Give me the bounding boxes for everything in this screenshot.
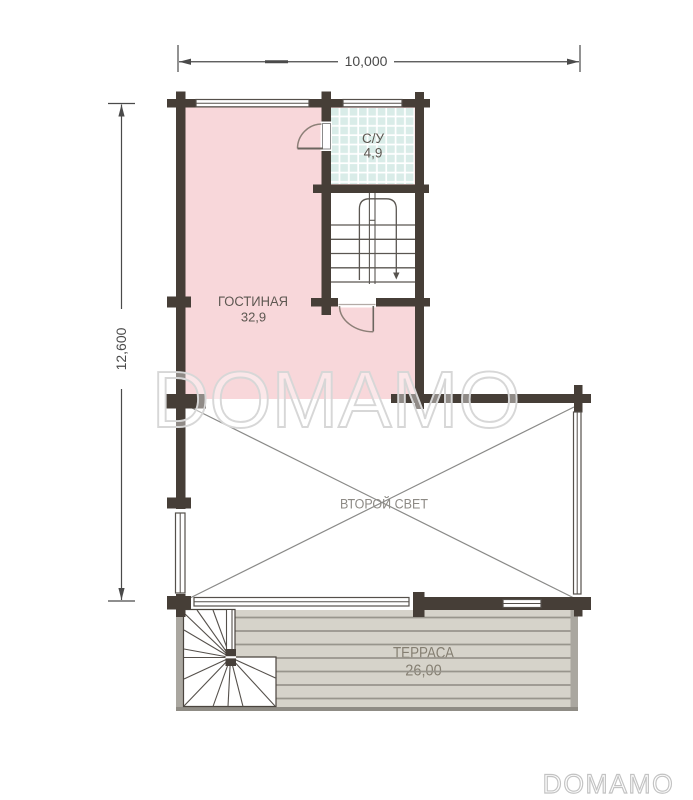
svg-text:4,9: 4,9 (364, 146, 383, 161)
svg-text:С/У: С/У (362, 131, 385, 146)
svg-text:ГОСТИНАЯ: ГОСТИНАЯ (218, 294, 288, 309)
svg-text:ВТОРОЙ СВЕТ: ВТОРОЙ СВЕТ (340, 497, 428, 512)
svg-text:32,9: 32,9 (241, 310, 266, 325)
svg-text:ТЕРРАСА: ТЕРРАСА (393, 645, 454, 662)
svg-text:DOMAMO: DOMAMO (543, 769, 675, 799)
svg-text:DOMAMO: DOMAMO (152, 355, 521, 444)
svg-text:12,600: 12,600 (113, 327, 129, 370)
svg-text:10,000: 10,000 (345, 53, 388, 69)
